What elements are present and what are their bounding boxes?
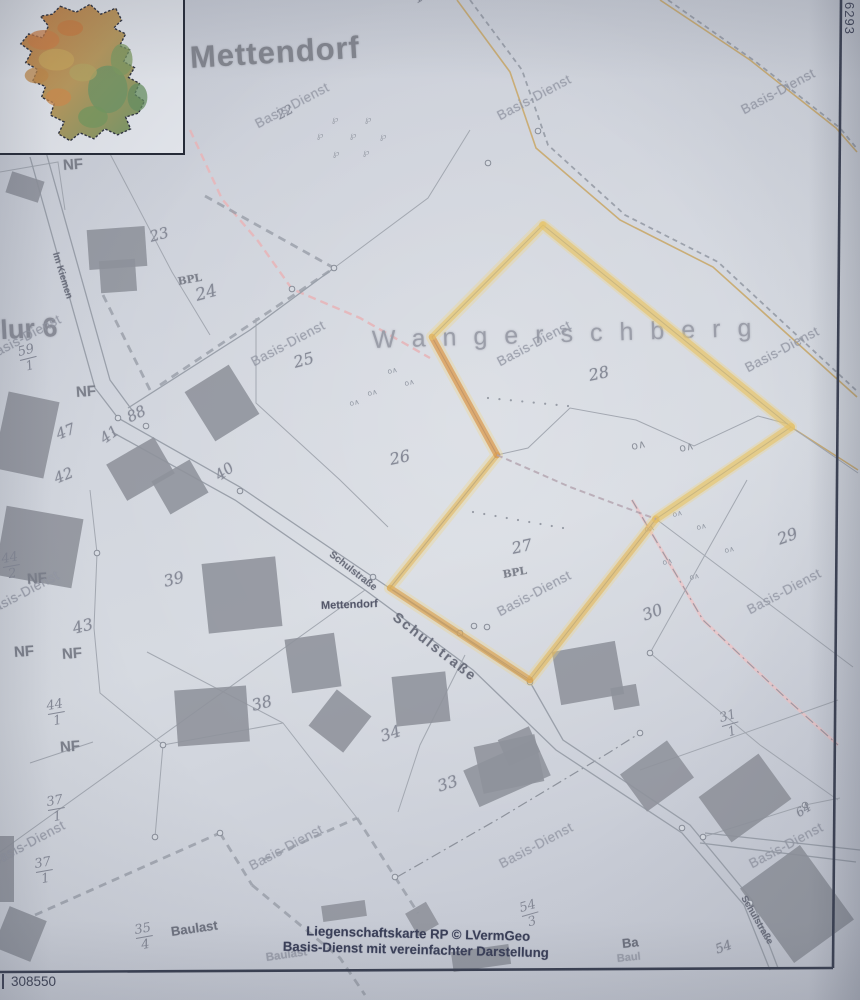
grid-coordinate-top-right: 6293	[842, 2, 857, 35]
cadastral-map-photo: ℘℘℘℘℘℘℘o∧o∧o∧o∧o∧o∧o∧o∧o∧o∧o∧o∧ Mettendo…	[0, 0, 860, 1000]
map-caption: Liegenschaftskarte RP © LVermGeo Basis-D…	[283, 923, 550, 961]
grid-coordinate-bottom-left: 308550	[2, 974, 56, 989]
overview-inset-map	[0, 0, 185, 155]
rhineland-palatinate-shape	[0, 0, 182, 152]
